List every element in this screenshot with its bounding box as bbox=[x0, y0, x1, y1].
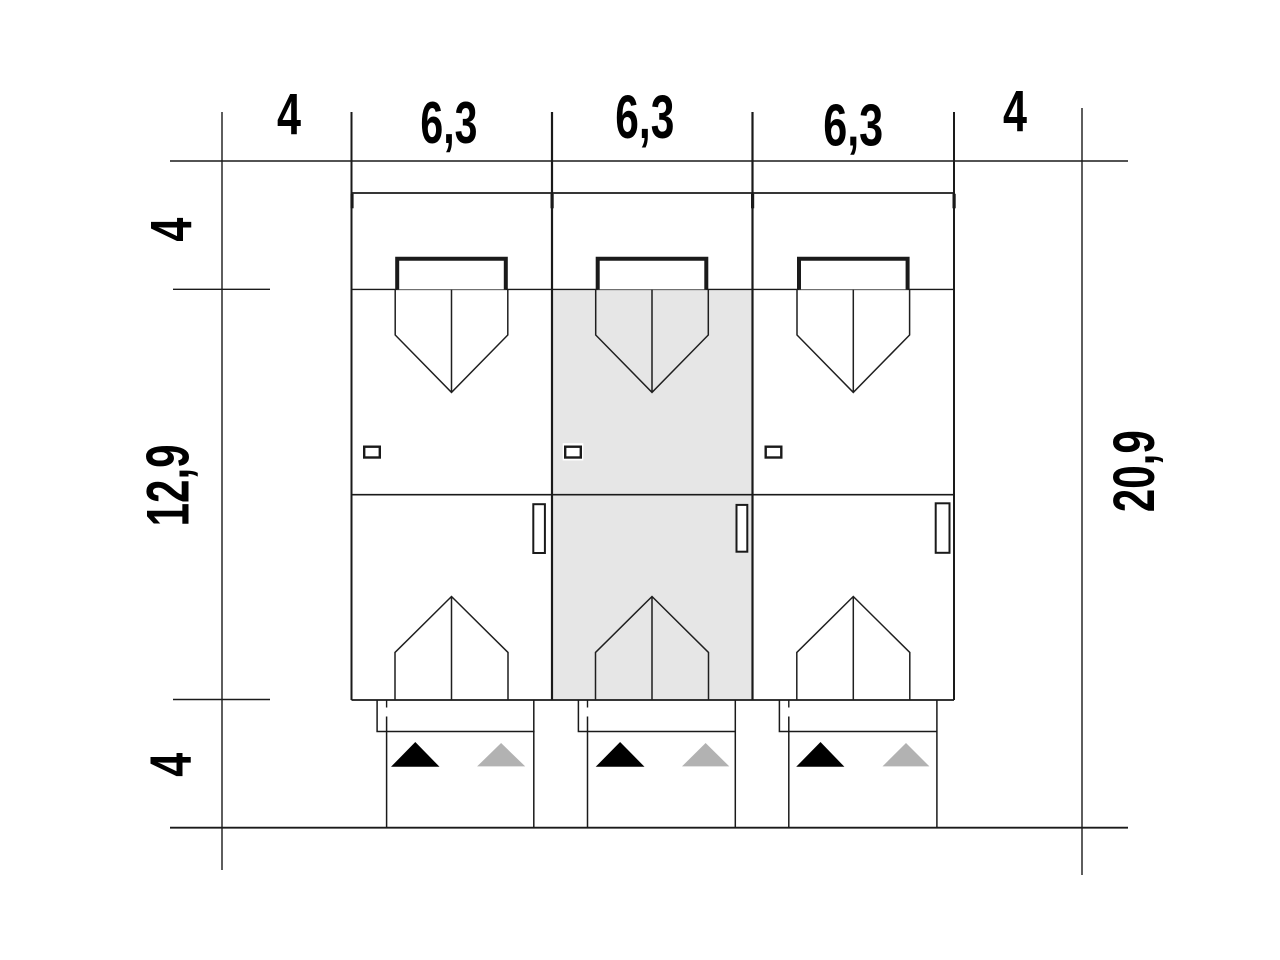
svg-text:6,3: 6,3 bbox=[823, 93, 883, 159]
svg-text:4: 4 bbox=[138, 753, 203, 777]
svg-text:20,9: 20,9 bbox=[1102, 430, 1167, 512]
svg-text:4: 4 bbox=[139, 218, 204, 242]
svg-text:6,3: 6,3 bbox=[420, 90, 477, 156]
svg-text:4: 4 bbox=[1003, 79, 1027, 144]
svg-text:4: 4 bbox=[277, 82, 301, 147]
svg-text:12,9: 12,9 bbox=[134, 444, 201, 526]
svg-text:6,3: 6,3 bbox=[615, 83, 674, 151]
